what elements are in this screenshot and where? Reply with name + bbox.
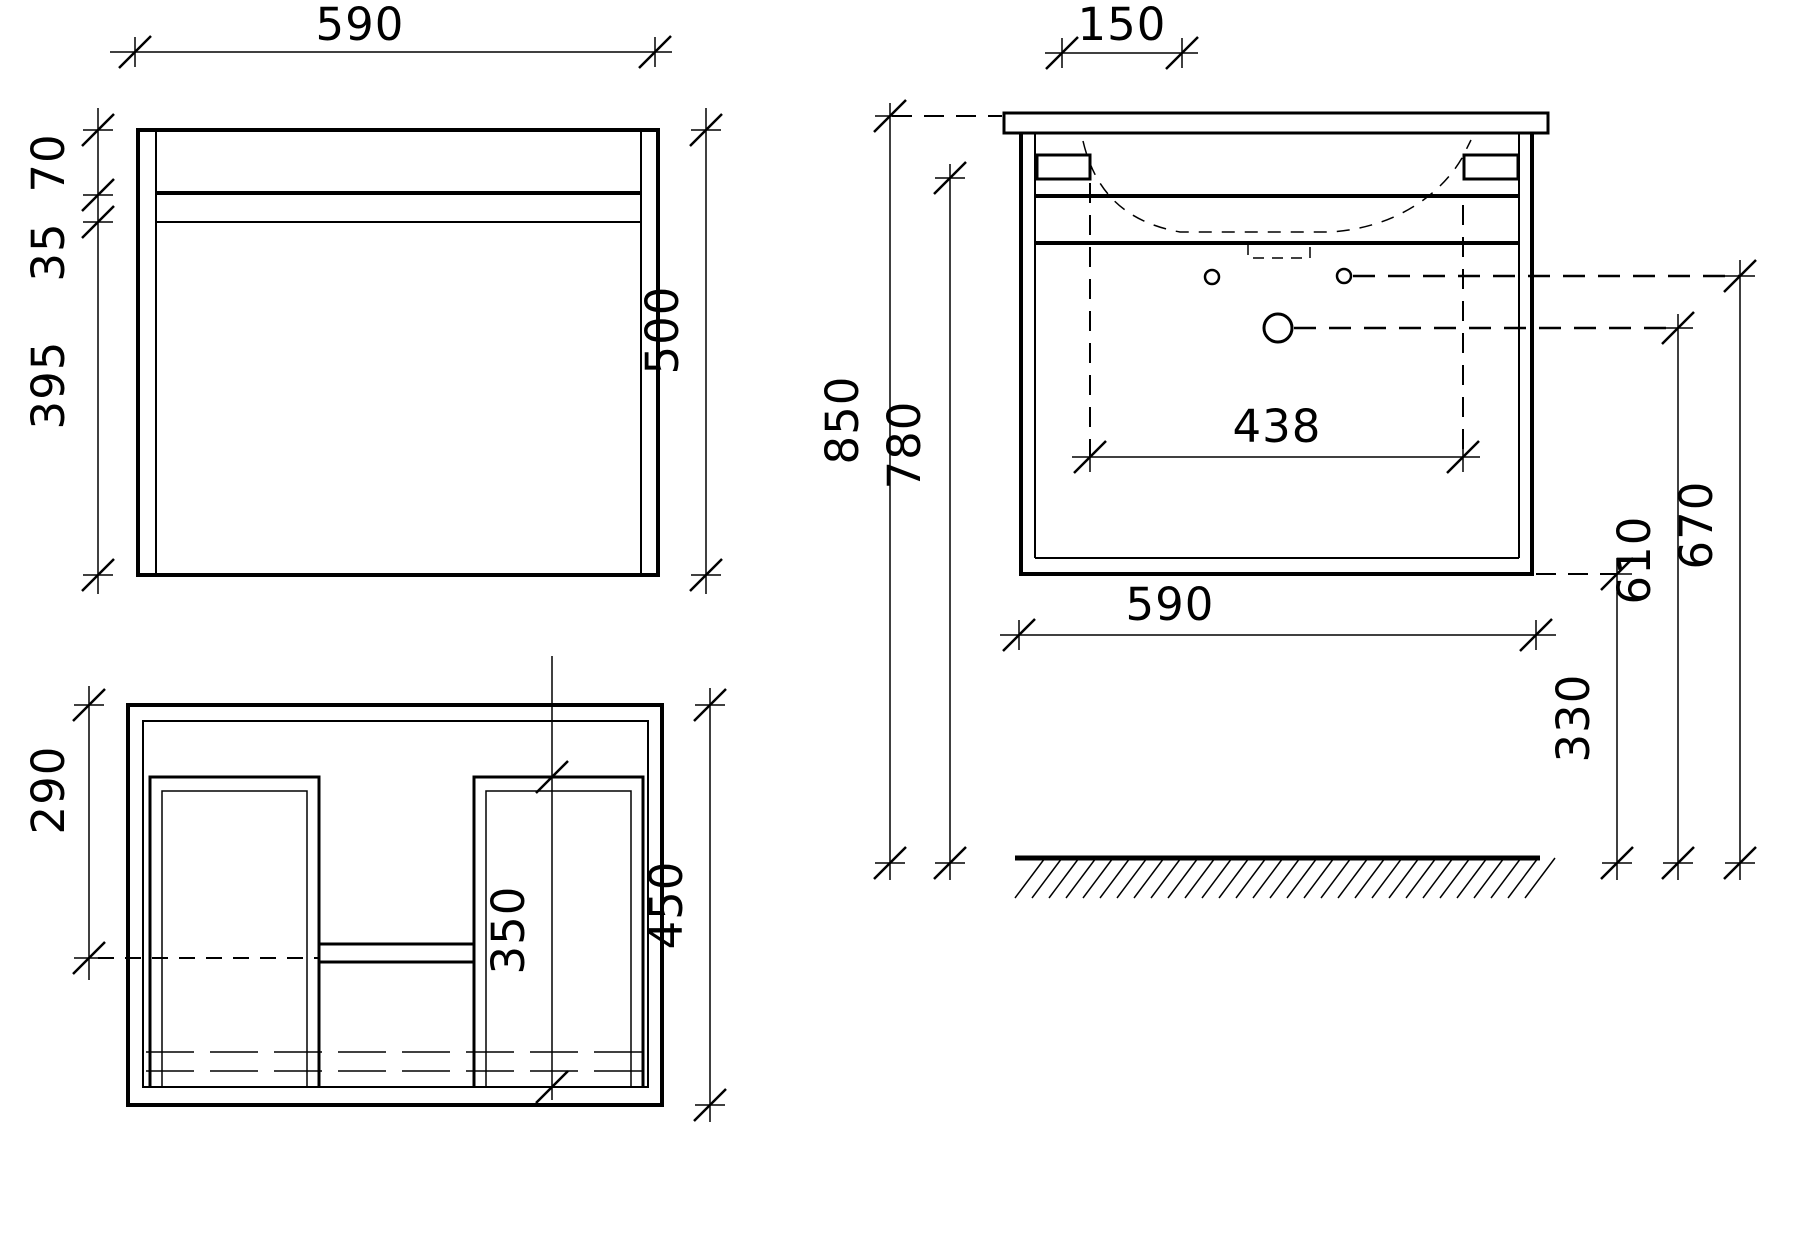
dim-label-front-width: 590 bbox=[316, 0, 405, 51]
dim-side-depth: 590 bbox=[1000, 578, 1556, 651]
fixing-hole-left bbox=[1205, 270, 1219, 284]
dim-front-height: 500 bbox=[636, 108, 722, 594]
floor-hatch-stroke bbox=[1219, 858, 1249, 898]
drawer-runner-left-outer bbox=[150, 777, 319, 1087]
floor-hatch-stroke bbox=[1355, 858, 1385, 898]
drawing-sheet: 590 70 35 395 500 bbox=[0, 0, 1800, 1250]
dim-label-top-rail: 70 bbox=[22, 133, 75, 192]
mounting-bracket-left bbox=[1037, 155, 1090, 179]
dim-label-hole-span: 438 bbox=[1233, 400, 1322, 453]
floor-hatch-stroke bbox=[1083, 858, 1113, 898]
floor-hatch-stroke bbox=[1066, 858, 1096, 898]
floor-hatch-stroke bbox=[1304, 858, 1334, 898]
dim-label-height-850: 850 bbox=[816, 376, 869, 465]
floor-hatch-stroke bbox=[1389, 858, 1419, 898]
floor-hatch-stroke bbox=[1474, 858, 1504, 898]
dim-plan-depth: 450 bbox=[640, 688, 726, 1122]
plan-view-outline bbox=[128, 705, 662, 1105]
sink-bowl-hidden-outline bbox=[1083, 140, 1471, 232]
dim-label-plan-depth: 450 bbox=[640, 861, 693, 950]
floor-hatch-stroke bbox=[1525, 858, 1555, 898]
dim-label-height-670: 670 bbox=[1670, 481, 1723, 570]
dim-plan-runner-length: 350 bbox=[482, 656, 568, 1103]
mounting-bracket-right bbox=[1464, 155, 1518, 179]
dim-label-side-depth: 590 bbox=[1126, 578, 1215, 631]
floor-hatch-stroke bbox=[1117, 858, 1147, 898]
side-view: 150 850 780 438 590 bbox=[816, 0, 1756, 898]
floor-hatch-stroke bbox=[1406, 858, 1436, 898]
front-view-outline bbox=[138, 130, 658, 575]
dim-label-tap-spacing: 150 bbox=[1078, 0, 1167, 51]
dim-front-width: 590 bbox=[110, 0, 672, 68]
dim-label-front-height: 500 bbox=[636, 286, 689, 375]
floor-hatch-stroke bbox=[1134, 858, 1164, 898]
floor-hatch-stroke bbox=[1270, 858, 1300, 898]
floor-hatch-stroke bbox=[1236, 858, 1266, 898]
dim-side-hole-span: 438 bbox=[1072, 400, 1480, 473]
dim-label-height-330: 330 bbox=[1547, 674, 1600, 763]
tap-hole bbox=[1264, 314, 1292, 342]
drawer-runner-left-inner bbox=[162, 791, 307, 1087]
floor-hatch-stroke bbox=[1372, 858, 1402, 898]
plan-view: 290 350 450 bbox=[22, 656, 726, 1122]
dim-label-lower-height: 395 bbox=[22, 341, 75, 430]
floor-hatch-stroke bbox=[1321, 858, 1351, 898]
dim-front-left-column: 70 35 395 bbox=[22, 108, 114, 594]
technical-drawing: 590 70 35 395 500 bbox=[0, 0, 1800, 1250]
floor-hatch-stroke bbox=[1100, 858, 1130, 898]
floor-hatching bbox=[1015, 858, 1555, 898]
floor-hatch-stroke bbox=[1338, 858, 1368, 898]
floor-hatch-stroke bbox=[1185, 858, 1215, 898]
countertop bbox=[1004, 113, 1548, 133]
fixing-hole-right bbox=[1337, 269, 1351, 283]
floor-hatch-stroke bbox=[1457, 858, 1487, 898]
dim-side-height-330: 330 bbox=[1547, 558, 1633, 880]
floor-hatch-stroke bbox=[1168, 858, 1198, 898]
floor-hatch-stroke bbox=[1508, 858, 1538, 898]
front-view: 590 70 35 395 500 bbox=[22, 0, 722, 594]
dim-side-tap-spacing: 150 bbox=[1045, 0, 1198, 69]
dim-label-height-610: 610 bbox=[1608, 516, 1661, 605]
floor-hatch-stroke bbox=[1287, 858, 1317, 898]
floor-hatch-stroke bbox=[1151, 858, 1181, 898]
dim-side-height-610: 610 bbox=[1608, 312, 1694, 880]
floor-hatch-stroke bbox=[1015, 858, 1045, 898]
floor-hatch-stroke bbox=[1202, 858, 1232, 898]
dim-label-height-780: 780 bbox=[878, 401, 931, 490]
dim-label-runner-length: 350 bbox=[482, 886, 535, 975]
floor-hatch-stroke bbox=[1049, 858, 1079, 898]
floor-hatch-stroke bbox=[1253, 858, 1283, 898]
floor-hatch-stroke bbox=[1491, 858, 1521, 898]
floor-hatch-stroke bbox=[1440, 858, 1470, 898]
dim-side-height-670: 670 bbox=[1670, 260, 1756, 880]
dim-side-height-780: 780 bbox=[878, 162, 966, 880]
drain-hidden-outline bbox=[1248, 244, 1310, 258]
dim-label-setback: 290 bbox=[22, 746, 75, 835]
floor-hatch-stroke bbox=[1423, 858, 1453, 898]
floor-hatch-stroke bbox=[1032, 858, 1062, 898]
dim-plan-setback: 290 bbox=[22, 686, 105, 980]
dim-label-rail-gap: 35 bbox=[22, 222, 75, 281]
